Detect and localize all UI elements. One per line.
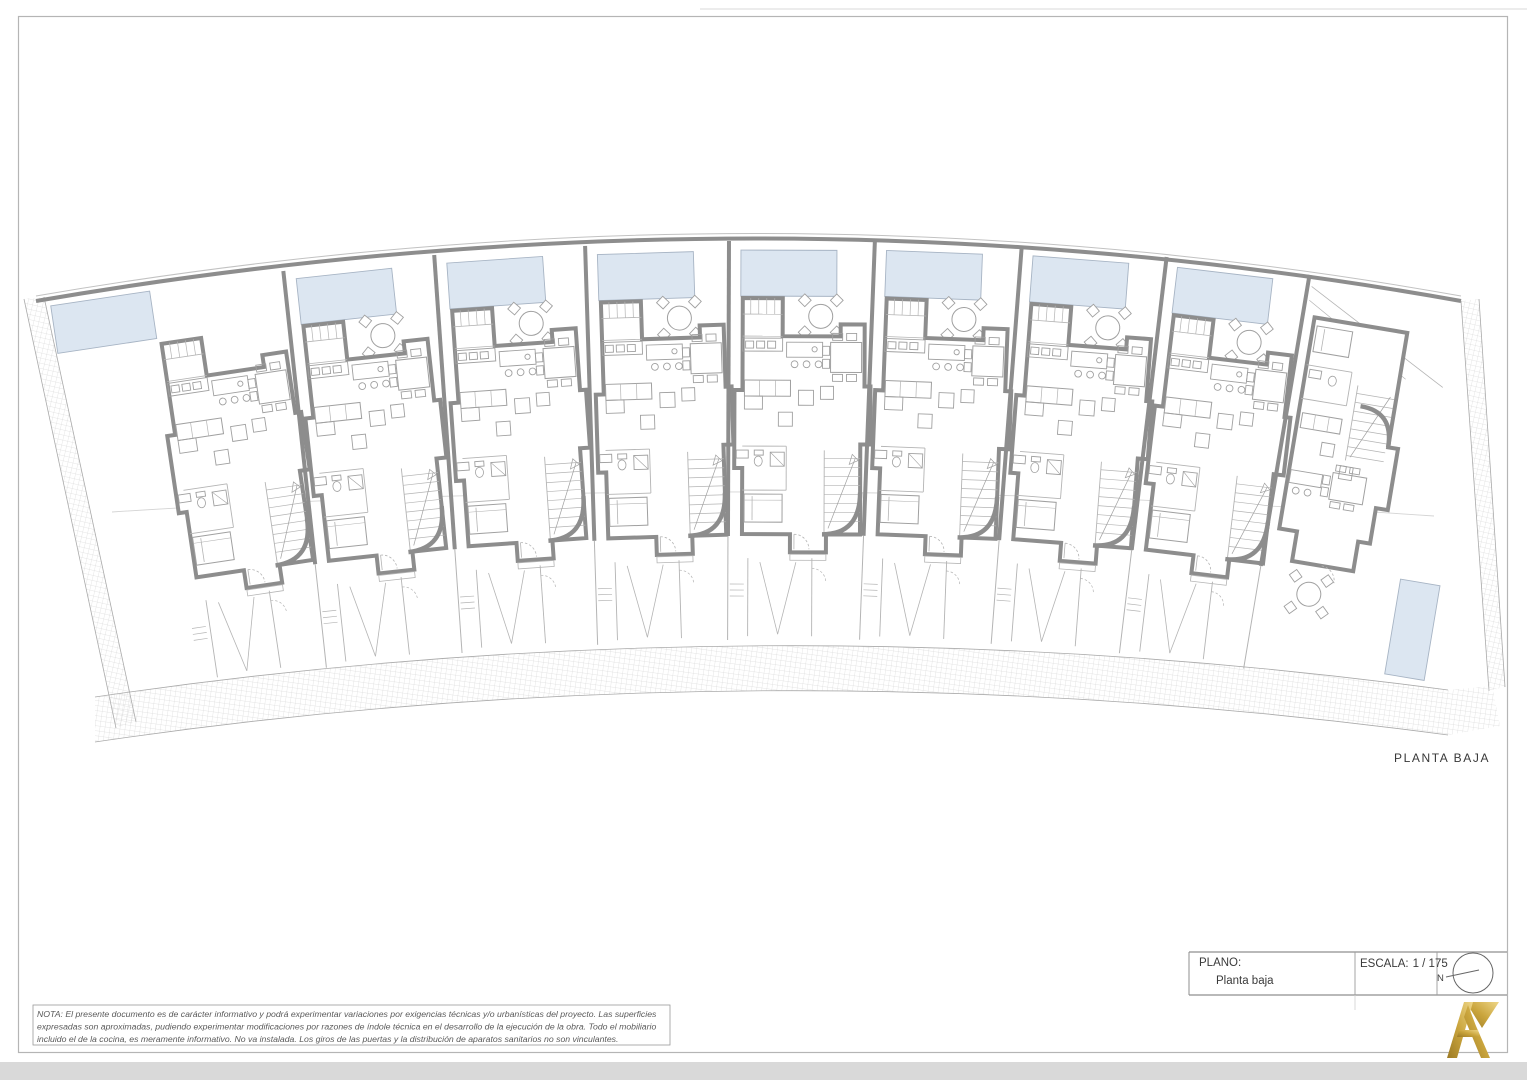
north-letter: N [1437, 973, 1444, 984]
plano-value: Planta baja [1216, 975, 1274, 987]
nota-line-1: NOTA: El presente documento es de caráct… [37, 1009, 657, 1019]
plano-label: PLANO: [1199, 957, 1241, 969]
scan-edge-bottom [0, 1062, 1527, 1080]
nota-box: NOTA: El presente documento es de caráct… [33, 1005, 670, 1045]
drawing-sheet: PLANTA BAJA PLANO: Planta baja ESCALA:1 … [0, 0, 1527, 1080]
nota-line-3: incluido el de la cocina, es meramente i… [37, 1034, 618, 1044]
nota-line-2: expresadas son aproximadas, pudiendo exp… [37, 1022, 656, 1032]
scale-text: ESCALA:1 / 175 [1360, 958, 1448, 970]
plan-label: PLANTA BAJA [1394, 751, 1490, 765]
floor-plan-sheet: PLANTA BAJA PLANO: Planta baja ESCALA:1 … [0, 0, 1527, 1080]
